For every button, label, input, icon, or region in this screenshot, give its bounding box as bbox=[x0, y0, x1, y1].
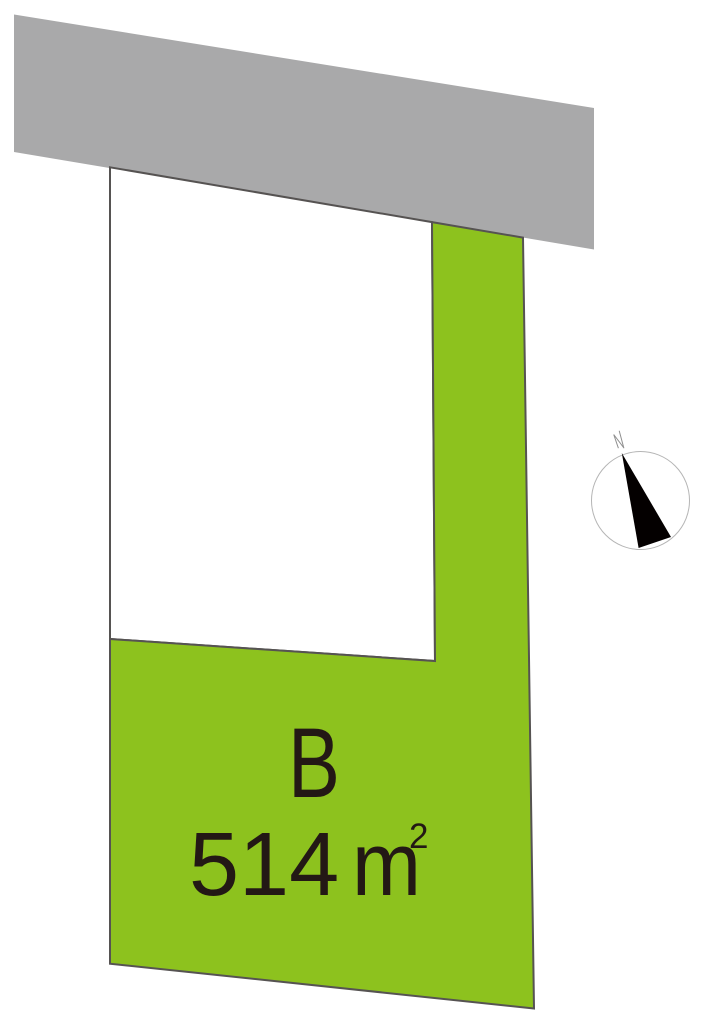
svg-text:514: 514 bbox=[189, 815, 339, 915]
svg-text:B: B bbox=[288, 707, 340, 818]
svg-text:2: 2 bbox=[409, 817, 428, 856]
